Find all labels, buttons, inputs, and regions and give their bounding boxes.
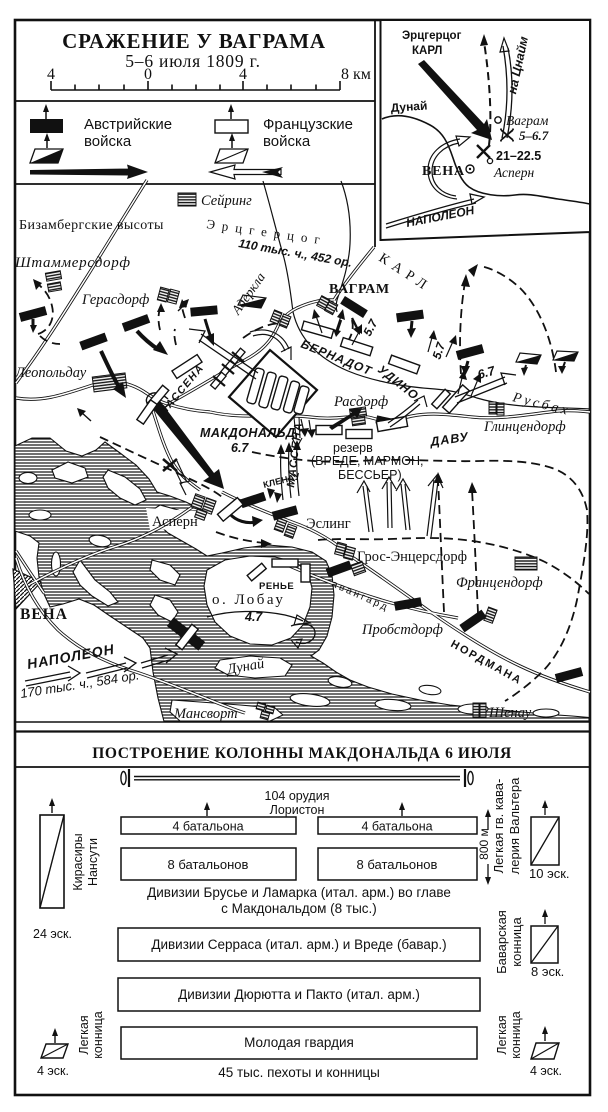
svg-text:Молодая гвардия: Молодая гвардия <box>244 1035 354 1050</box>
svg-text:Дивизии Серраса (итал. арм.) и: Дивизии Серраса (итал. арм.) и Вреде (ба… <box>151 937 446 952</box>
svg-text:Дивизии Брусье и Ламарка (итал: Дивизии Брусье и Ламарка (итал. арм.) во… <box>147 885 451 900</box>
svg-text:8 эск.: 8 эск. <box>531 964 564 979</box>
svg-text:СРАЖЕНИЕ У ВАГРАМА: СРАЖЕНИЕ У ВАГРАМА <box>62 29 326 53</box>
svg-text:Эслинг: Эслинг <box>306 516 351 532</box>
svg-text:Дунай: Дунай <box>390 98 428 115</box>
svg-text:8 батальонов: 8 батальонов <box>357 857 438 872</box>
svg-text:РЕНЬЕ: РЕНЬЕ <box>259 581 294 592</box>
svg-text:4 батальона: 4 батальона <box>172 820 243 834</box>
svg-text:4 эск.: 4 эск. <box>530 1064 562 1078</box>
svg-text:4: 4 <box>239 66 247 83</box>
svg-text:8 батальонов: 8 батальонов <box>168 857 249 872</box>
svg-text:4: 4 <box>47 66 55 83</box>
svg-text:Грос-Энцерсдорф: Грос-Энцерсдорф <box>357 549 467 565</box>
svg-text:Сейринг: Сейринг <box>201 193 252 209</box>
svg-text:Ваграм: Ваграм <box>506 113 549 128</box>
svg-text:Кирасиры: Кирасиры <box>71 833 85 890</box>
svg-text:Бизамбергские высоты: Бизамбергские высоты <box>19 218 164 233</box>
svg-text:Австрийские: Австрийские <box>84 116 172 133</box>
svg-text:(ВРЕДЕ, МАРМОН,: (ВРЕДЕ, МАРМОН, <box>311 454 424 468</box>
svg-text:МАКДОНАЛЬД: МАКДОНАЛЬД <box>200 426 296 440</box>
svg-text:Дивизии Дюрютта и Пакто (итал.: Дивизии Дюрютта и Пакто (итал. арм.) <box>178 987 420 1002</box>
svg-text:конница: конница <box>509 917 524 967</box>
svg-text:Лористон: Лористон <box>270 803 325 817</box>
svg-text:Нансути: Нансути <box>86 838 100 886</box>
svg-text:БЕССЬЕР): БЕССЬЕР) <box>338 468 402 482</box>
svg-text:Пробстдорф: Пробстдорф <box>361 622 443 638</box>
svg-text:ВАГРАМ: ВАГРАМ <box>329 282 390 297</box>
svg-text:24 эск.: 24 эск. <box>33 927 72 941</box>
svg-text:Легкая: Легкая <box>495 1015 509 1054</box>
svg-text:Штаммерсдорф: Штаммерсдорф <box>14 255 131 271</box>
svg-text:Асперн: Асперн <box>152 514 198 530</box>
svg-text:0: 0 <box>144 66 152 83</box>
svg-text:4.7: 4.7 <box>244 610 263 624</box>
svg-text:Мансворт: Мансворт <box>173 706 238 722</box>
svg-text:800 м: 800 м <box>477 828 491 860</box>
svg-text:4 батальона: 4 батальона <box>361 820 432 834</box>
svg-text:Герасдорф: Герасдорф <box>81 292 149 308</box>
svg-text:Легкая гв. кава-: Легкая гв. кава- <box>491 779 506 874</box>
svg-text:Легкая: Легкая <box>77 1015 91 1054</box>
svg-text:45 тыс. пехоты и конницы: 45 тыс. пехоты и конницы <box>218 1065 380 1080</box>
svg-text:конница: конница <box>91 1011 105 1059</box>
svg-text:Расдорф: Расдорф <box>333 394 388 410</box>
svg-text:войска: войска <box>263 133 311 150</box>
svg-text:Шенау: Шенау <box>488 705 532 721</box>
svg-text:104 орудия: 104 орудия <box>265 789 330 803</box>
svg-text:войска: войска <box>84 133 132 150</box>
svg-text:Баварская: Баварская <box>494 910 509 974</box>
svg-text:Асперн: Асперн <box>493 165 535 180</box>
svg-text:Французские: Французские <box>263 116 353 133</box>
svg-text:5–6.7: 5–6.7 <box>519 128 549 143</box>
svg-text:ПОСТРОЕНИЕ КОЛОННЫ МАКДОНАЛЬДА: ПОСТРОЕНИЕ КОЛОННЫ МАКДОНАЛЬДА 6 ИЮЛЯ <box>92 745 512 762</box>
svg-text:Францендорф: Францендорф <box>456 575 543 591</box>
svg-text:о. Лобау: о. Лобау <box>212 592 285 608</box>
svg-text:Леопольдау: Леопольдау <box>14 365 87 381</box>
svg-text:21–22.5: 21–22.5 <box>496 149 541 163</box>
svg-text:резерв: резерв <box>333 441 373 455</box>
svg-text:Глинцендорф: Глинцендорф <box>483 419 566 435</box>
svg-text:4 эск.: 4 эск. <box>37 1064 69 1078</box>
svg-text:лерия Вальтера: лерия Вальтера <box>507 777 522 874</box>
svg-text:10 эск.: 10 эск. <box>529 866 570 881</box>
svg-text:с Макдональдом (8 тыс.): с Макдональдом (8 тыс.) <box>221 901 377 916</box>
svg-text:8 км: 8 км <box>341 66 371 83</box>
svg-text:Эрцгерцог: Эрцгерцог <box>402 30 462 42</box>
svg-text:6.7: 6.7 <box>231 441 249 455</box>
svg-text:конница: конница <box>509 1011 523 1059</box>
svg-text:КАРЛ: КАРЛ <box>412 45 442 57</box>
svg-text:ВЕНА: ВЕНА <box>20 606 68 623</box>
